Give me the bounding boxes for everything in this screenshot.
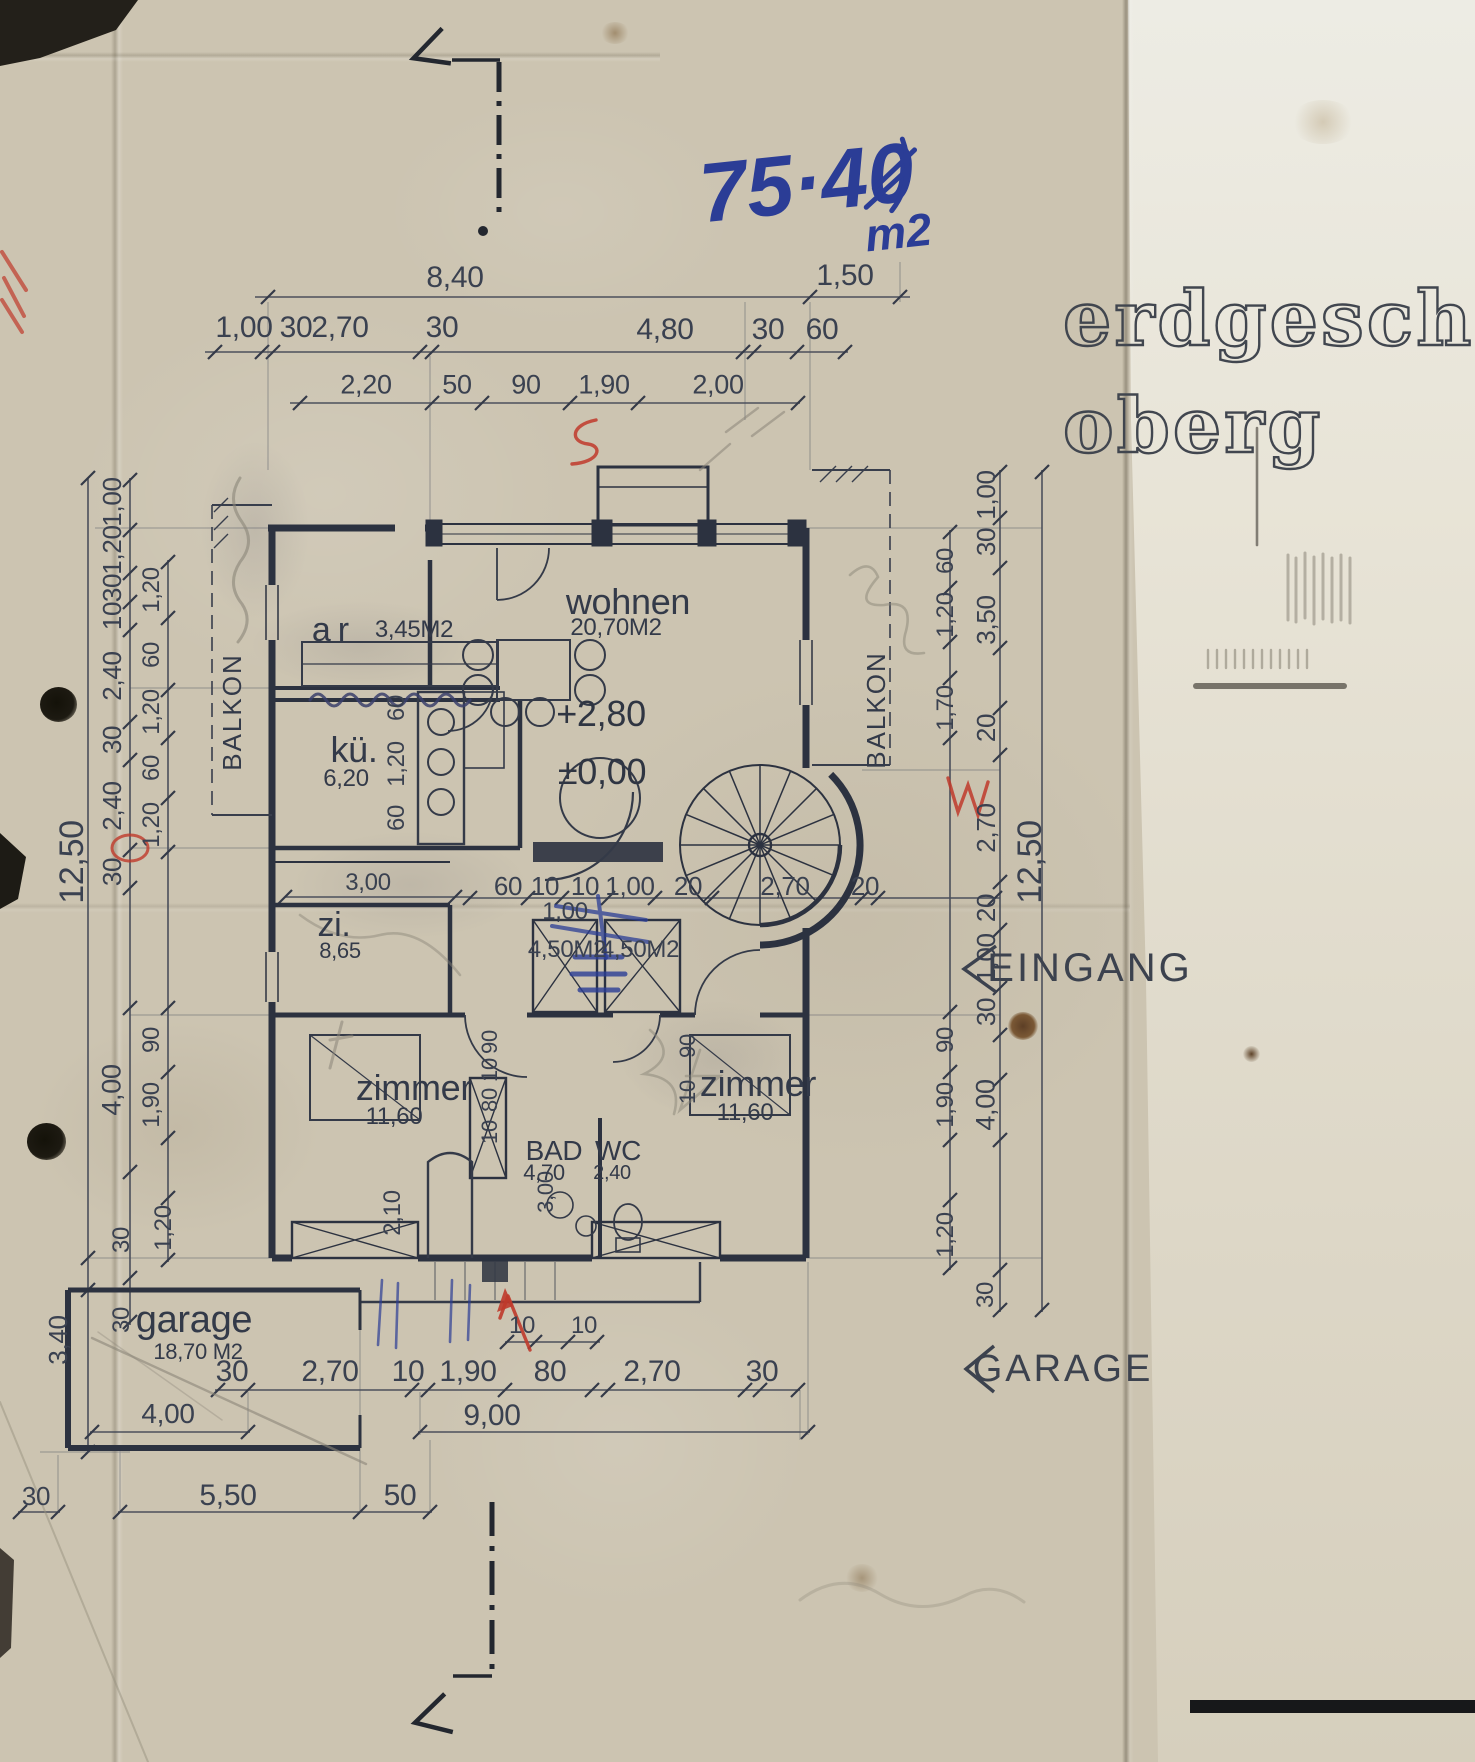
dim-top: 60: [806, 315, 839, 345]
dim-left: 1,20: [140, 567, 164, 613]
dim-top: 2,70: [311, 313, 368, 343]
room-kueche-area: 6,20: [323, 767, 369, 791]
dim-kueche: 1,20: [385, 741, 409, 787]
dim-left: 60: [140, 642, 164, 668]
dim-bottom: 1,90: [439, 1357, 496, 1387]
dim-top: 30: [752, 315, 785, 345]
dim-bottom: 2,70: [623, 1357, 680, 1387]
dim-mid: 1,00: [605, 873, 654, 899]
dim-right: 1,90: [934, 1082, 958, 1128]
dim-kueche: 60: [385, 695, 409, 721]
dim-left-total: 12,50: [55, 820, 89, 904]
dim-top: 1,00: [215, 313, 272, 343]
dim-bottom: 30: [746, 1357, 779, 1387]
dim-pier: 90: [479, 1030, 501, 1054]
dim-top: 30: [280, 313, 313, 343]
dim-right: 1,20: [934, 592, 958, 638]
handwritten-annotation: 75·40 m2: [695, 123, 934, 278]
room-zimmer-left-area: 11,60: [366, 1105, 423, 1129]
dim-bottom: 2,70: [301, 1357, 358, 1387]
dim-right: 3,50: [973, 595, 999, 644]
room-zimmer-right: zimmer: [700, 1066, 816, 1102]
dim-mid: 10: [531, 873, 559, 899]
dim-bottom: 4,00: [141, 1400, 194, 1428]
dim-left: 30: [110, 1307, 134, 1333]
dim-left: 1,20: [99, 525, 125, 574]
dim-top: 4,80: [636, 315, 693, 345]
room-wc: WC: [595, 1137, 641, 1165]
section-arrow-top: [408, 28, 451, 71]
dim-right: 20: [973, 714, 999, 742]
dim-top: 1,50: [816, 261, 873, 291]
dim-right: 1,20: [934, 1212, 958, 1258]
dim-hall-width: 1,00: [542, 900, 588, 924]
garage-direction-label: GARAGE: [973, 1350, 1154, 1388]
dim-zi-width: 3,00: [345, 871, 391, 895]
dim-right-total: 12,50: [1013, 820, 1047, 904]
dim-left: 1,20: [140, 802, 164, 848]
dim-right: 20: [973, 894, 999, 922]
dim-right: 60: [934, 548, 958, 574]
room-garage: garage: [136, 1301, 253, 1339]
dim-bottom: 10: [571, 1314, 597, 1338]
dim-bottom: 80: [534, 1357, 567, 1387]
dim-left: 30: [99, 726, 125, 754]
room-garage-area: 18,70 M2: [153, 1341, 242, 1363]
dim-left: 90: [140, 1027, 164, 1053]
dim-top: 90: [511, 372, 540, 399]
balkon-right-label: BALKON: [863, 651, 889, 769]
dim-right: 30: [973, 998, 999, 1026]
dim-garage-height: 3,40: [45, 1315, 71, 1364]
dim-right: 1,70: [934, 685, 958, 731]
dim-mid: 20: [851, 873, 879, 899]
dim-right: 30: [973, 528, 999, 556]
room-zimmer-left: zimmer: [356, 1070, 472, 1106]
section-arrow-bottom: [410, 1694, 452, 1739]
closet-area-right: 4,50M2: [601, 938, 679, 962]
dim-bottom: 10: [392, 1357, 425, 1387]
room-ar-area: 3,45M2: [375, 618, 453, 642]
dim-left: 2,40: [99, 781, 125, 830]
dim-left: 10: [99, 602, 125, 630]
room-kueche: kü.: [330, 732, 377, 768]
dim-bottom: 5,50: [199, 1481, 256, 1511]
dim-left: 2,40: [99, 651, 125, 700]
dim-mid: 60: [494, 873, 522, 899]
level-upper: +2,80: [556, 696, 646, 732]
dim-left: 30: [99, 858, 125, 886]
handwritten-unit: m2: [862, 203, 934, 262]
room-zi-area: 8,65: [319, 940, 361, 962]
dim-right: 1,00: [973, 470, 999, 519]
closet-area-left: 4,50M2: [528, 938, 606, 962]
dim-left: 60: [140, 755, 164, 781]
dim-left: 30: [99, 574, 125, 602]
blueprint-sheet: erdgesch oberg 75·40 m2: [0, 0, 1475, 1762]
title-block: erdgesch oberg: [1063, 274, 1474, 470]
dim-mid: 2,70: [760, 873, 809, 899]
room-bad-area: 4,70: [523, 1162, 565, 1184]
title-line-1: erdgesch: [1063, 274, 1474, 363]
dim-pier: 10: [479, 1120, 501, 1144]
dim-mid: 20: [674, 873, 702, 899]
room-wc-area: 2,40: [593, 1163, 631, 1183]
dim-right: 90: [934, 1027, 958, 1053]
dim-kueche: 60: [385, 805, 409, 831]
dim-top: 50: [442, 372, 471, 399]
dim-left: 1,20: [140, 689, 164, 735]
dim-top: 8,40: [426, 263, 483, 293]
dim-bottom: 10: [509, 1314, 535, 1338]
dim-mid: 10: [571, 873, 599, 899]
dim-bottom: 30: [22, 1483, 50, 1509]
dim-left: 4,00: [99, 1064, 126, 1115]
room-wohnen-area: 20,70M2: [570, 616, 661, 640]
level-ground: ±0,00: [558, 754, 646, 790]
dim-room-right: 90: [677, 1034, 699, 1058]
spiral-staircase: [680, 765, 860, 945]
dim-pier: 10: [479, 1058, 501, 1082]
dim-pier: 80: [479, 1088, 501, 1112]
bottom-rule: [1190, 1700, 1475, 1713]
dim-right: 4,00: [973, 1079, 1000, 1130]
room-zimmer-right-area: 11,60: [717, 1101, 774, 1125]
dim-top: 30: [426, 313, 459, 343]
pen-scribbles: [310, 694, 648, 1348]
dim-bottom: 50: [384, 1481, 417, 1511]
dim-top: 1,90: [578, 372, 629, 399]
dim-top: 2,20: [340, 372, 391, 399]
dim-left: 1,20: [152, 1205, 176, 1251]
eingang-label: EINGANG: [987, 948, 1192, 988]
dim-top: 2,00: [692, 372, 743, 399]
dim-bottom: 9,00: [463, 1401, 520, 1431]
room-zi: zi.: [317, 908, 350, 942]
dim-left: 1,90: [140, 1082, 164, 1128]
dim-right: 2,70: [973, 803, 999, 852]
title-line-2: oberg: [1063, 381, 1323, 470]
dim-right: 30: [974, 1282, 998, 1308]
red-marks: [2, 252, 988, 1350]
dim-room-right: 10: [677, 1080, 699, 1104]
room-ar: ar: [312, 613, 356, 647]
dim-left: 1,00: [99, 477, 125, 526]
balkon-left-label: BALKON: [219, 653, 245, 771]
dim-left: 30: [110, 1227, 134, 1253]
dim-bath: 2,10: [381, 1190, 405, 1236]
